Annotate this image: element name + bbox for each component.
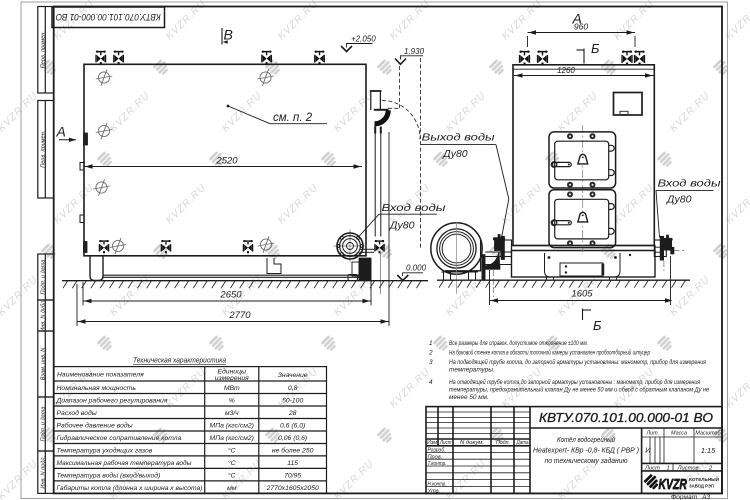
svg-text:N докум.: N докум. (460, 440, 484, 446)
svg-text:1: 1 (667, 465, 670, 471)
svg-text:Ду80: Ду80 (666, 194, 692, 206)
svg-text:Вход воды: Вход воды (382, 202, 446, 214)
svg-text:Пров.: Пров. (428, 454, 443, 460)
svg-text:Лит.: Лит. (645, 431, 659, 437)
svg-text:Наименование показателя: Наименование показателя (57, 372, 144, 379)
svg-text:Б: Б (591, 41, 600, 56)
svg-text:Дата: Дата (516, 440, 529, 446)
svg-text:115: 115 (287, 460, 298, 467)
svg-text:1605: 1605 (571, 289, 593, 300)
svg-text:°С: °С (228, 459, 236, 467)
svg-text:2770х1605х2050: 2770х1605х2050 (266, 485, 319, 492)
svg-text:Габариты котла (длинна х ширин: Габариты котла (длинна х ширина х высота… (57, 484, 203, 492)
svg-text:температуры.: температуры. (449, 367, 495, 374)
svg-text:Утв.: Утв. (427, 488, 441, 494)
svg-text:Формат: Формат (671, 494, 698, 500)
svg-text:см. п. 2: см. п. 2 (273, 112, 313, 124)
svg-text:0.000: 0.000 (406, 264, 427, 273)
svg-text:70/95: 70/95 (284, 472, 301, 479)
svg-text:Изм: Изм (427, 440, 437, 446)
svg-text:1: 1 (429, 340, 433, 347)
svg-text:Перв. примен.: Перв. примен. (41, 131, 47, 168)
svg-text:И: И (645, 446, 651, 455)
svg-text:Значение: Значение (278, 372, 308, 379)
svg-text:°С: °С (228, 471, 236, 479)
svg-text:0,06 (0,6): 0,06 (0,6) (278, 435, 307, 442)
svg-text:Выход воды: Выход воды (422, 131, 495, 143)
svg-text:0,8: 0,8 (288, 385, 298, 392)
svg-text:МПа (кгс/см2): МПа (кгс/см2) (210, 422, 254, 429)
svg-text:м3/ч: м3/ч (225, 410, 239, 417)
svg-text:измерения: измерения (215, 375, 249, 382)
svg-text:Котёл водогрейный: Котёл водогрейный (557, 435, 615, 444)
svg-text:2650: 2650 (219, 290, 242, 301)
svg-text:ЗАВОД РЭП: ЗАВОД РЭП (689, 483, 714, 489)
svg-text:В: В (224, 27, 233, 43)
svg-text:Перв. примен.: Перв. примен. (41, 31, 47, 68)
svg-text:На подводящей трубе котла, до: На подводящей трубе котла, до запорной а… (449, 358, 706, 366)
svg-text:по техническому заданию: по техническому заданию (545, 456, 629, 465)
svg-text:Лист: Лист (439, 440, 452, 446)
svg-text:А: А (572, 11, 582, 27)
svg-text:Б: Б (593, 318, 602, 333)
svg-text:МПа (кгс/см2): МПа (кгс/см2) (210, 435, 254, 442)
svg-text:КВТУ.070.101.00.000-01 ВО: КВТУ.070.101.00.000-01 ВО (539, 411, 713, 425)
svg-text:+2,050: +2,050 (351, 35, 376, 44)
svg-text:Ду80: Ду80 (442, 148, 468, 160)
svg-text:Взам. инв. N: Взам. инв. N (41, 347, 47, 381)
svg-text:1:15: 1:15 (701, 446, 716, 455)
svg-text:0,6 (6,0): 0,6 (6,0) (280, 422, 305, 429)
svg-text:температуры, предохранительный: температуры, предохранительный клапан Ду… (449, 386, 709, 394)
svg-text:Температура воды (вход/выход): Температура воды (вход/выход) (57, 471, 161, 479)
svg-text:мм: мм (227, 485, 237, 492)
svg-text:2: 2 (428, 350, 433, 357)
svg-text:КВТУ.070.101.00.000-01 ВО: КВТУ.070.101.00.000-01 ВО (56, 12, 161, 22)
svg-text:Разраб.: Разраб. (428, 448, 446, 454)
svg-text:А: А (56, 124, 66, 140)
svg-text:Масштаб: Масштаб (695, 431, 721, 437)
svg-text:На боковой стенке котла в обла: На боковой стенке котла в области топочн… (449, 349, 650, 357)
svg-text:Подп. и дата: Подп. и дата (41, 259, 47, 294)
svg-text:Гидравлическое сопративление к: Гидравлическое сопративление котла (57, 434, 182, 442)
svg-text:Диапазон рабочего регулировани: Диапазон рабочего регулирования (56, 396, 168, 404)
svg-text:KVZR: KVZR (659, 477, 688, 493)
svg-text:Техническая характеристика: Техническая характеристика (133, 357, 226, 365)
svg-text:4: 4 (429, 379, 433, 386)
svg-text:А3: А3 (701, 494, 710, 500)
svg-text:Расход воды: Расход воды (57, 409, 97, 417)
svg-text:Все размеры для справок, допус: Все размеры для справок, допустимое откл… (449, 339, 588, 347)
svg-text:Подп.: Подп. (496, 440, 510, 446)
svg-text:Инв. N подл.: Инв. N подл. (41, 456, 47, 489)
svg-text:На отводящей трубе котла,до за: На отводящей трубе котла,до запорной арм… (449, 378, 700, 386)
svg-text:3: 3 (429, 359, 433, 366)
svg-text:Масса: Масса (671, 431, 687, 437)
svg-text:Вход воды: Вход воды (658, 178, 721, 190)
svg-text:Heatexpert- КВр -0,8- КБД ( РВ: Heatexpert- КВр -0,8- КБД ( РВР ) (533, 446, 639, 455)
svg-text:2520: 2520 (215, 156, 238, 167)
svg-text:1260: 1260 (557, 66, 575, 75)
svg-text:не более 250: не более 250 (272, 446, 314, 454)
svg-text:Ду80: Ду80 (389, 219, 415, 231)
svg-text:%: % (229, 397, 235, 404)
svg-text:28: 28 (288, 410, 297, 417)
svg-text:Т.контр.: Т.контр. (428, 461, 447, 467)
svg-text:Листов: Листов (677, 465, 699, 471)
svg-text:°С: °С (228, 446, 236, 454)
svg-text:Номинальная мощность: Номинальная мощность (57, 385, 137, 392)
svg-text:Максимальная рабочая температу: Максимальная рабочая температура воды (57, 459, 192, 467)
svg-text:50-100: 50-100 (282, 397, 303, 404)
svg-text:Температура уходящих газов: Температура уходящих газов (57, 446, 153, 454)
svg-text:Лист: Лист (644, 465, 660, 471)
svg-text:менее 50 мм.: менее 50 мм. (449, 394, 489, 401)
svg-text:Рабочее давление воды: Рабочее давление воды (57, 421, 133, 429)
svg-text:2770: 2770 (228, 310, 251, 321)
svg-text:Инв. N дубл.: Инв. N дубл. (41, 299, 47, 331)
svg-text:Подп. и дата: Подп. и дата (41, 406, 47, 441)
svg-text:МВт: МВт (224, 385, 240, 392)
svg-text:1,930: 1,930 (404, 47, 425, 56)
svg-text:Н.контр.: Н.контр. (428, 482, 447, 488)
